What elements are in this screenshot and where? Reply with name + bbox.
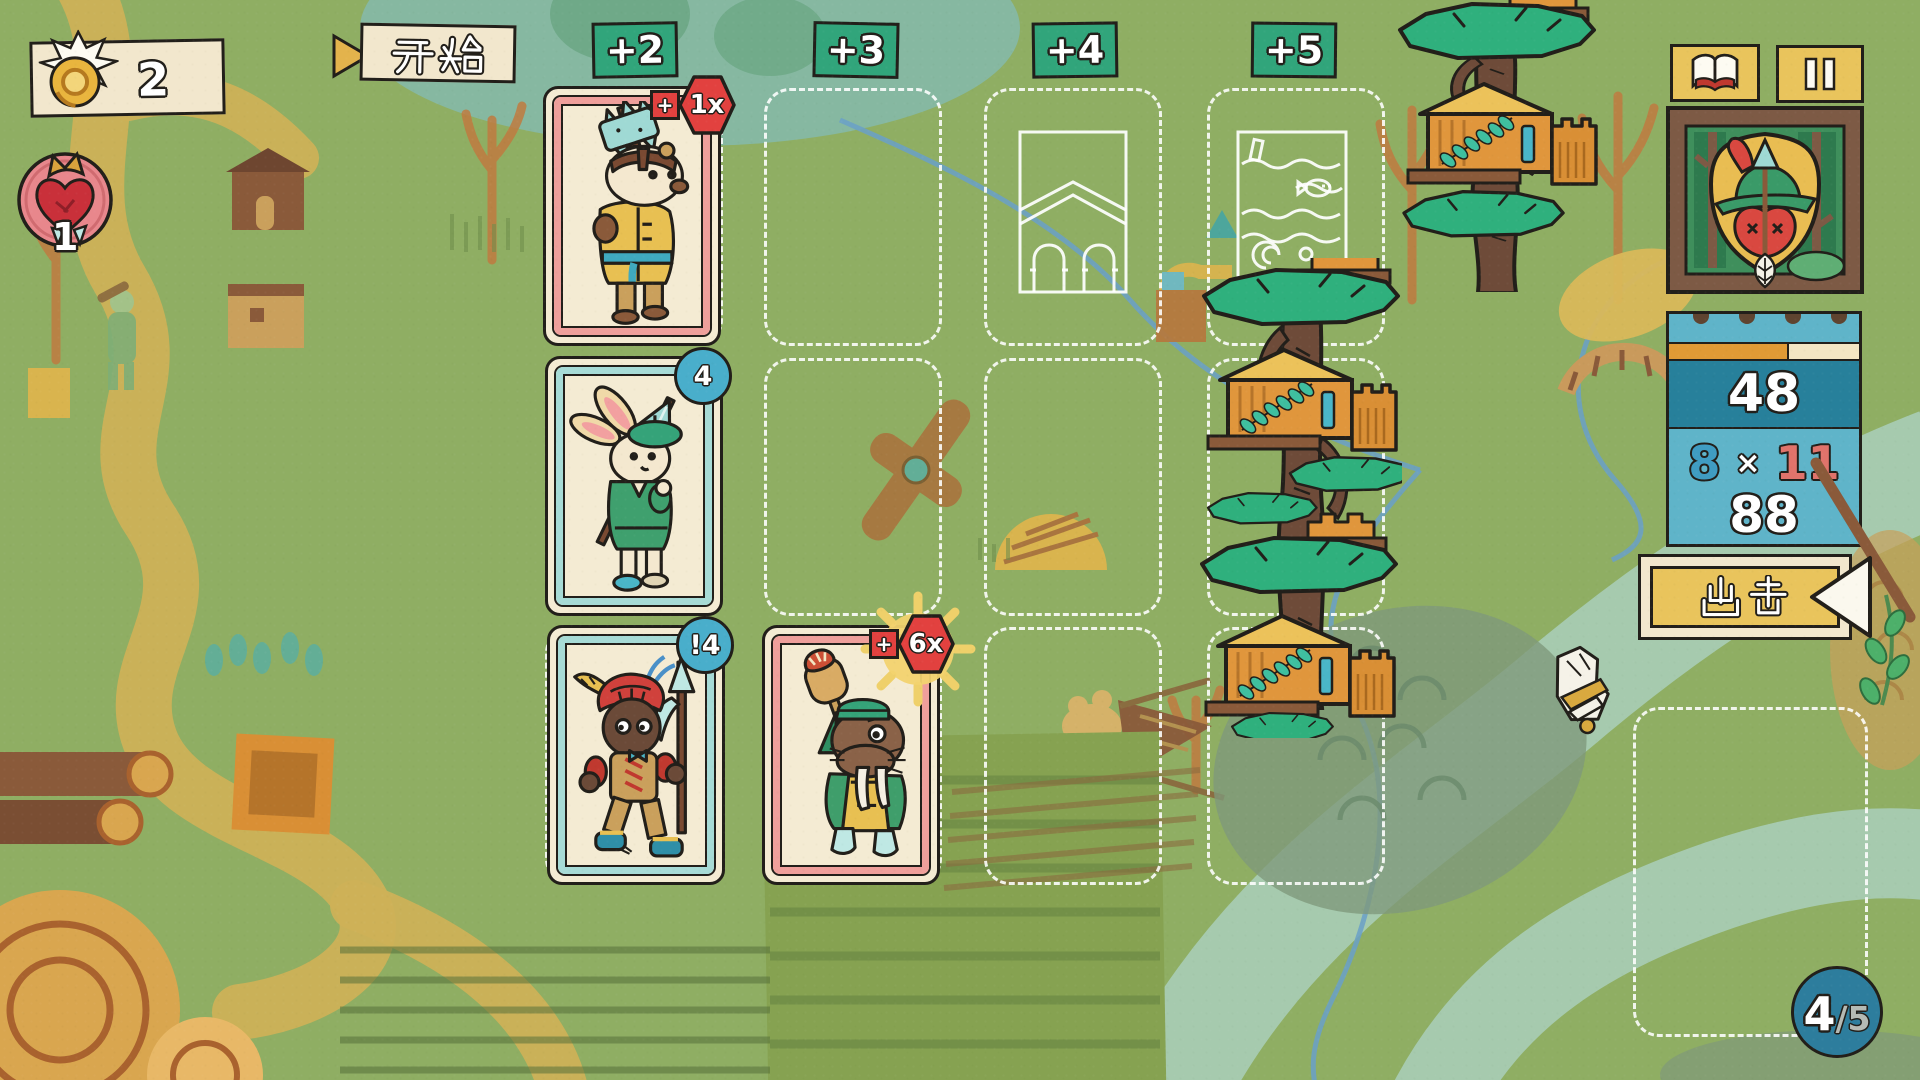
card-rabbit-spearman[interactable]: 4 — [545, 356, 723, 616]
attack-label-glyphs — [1695, 575, 1795, 619]
column-header-plus4: +4 — [1032, 21, 1119, 78]
card-badge: !4 — [676, 616, 734, 674]
gold-counter: 2 — [29, 38, 225, 117]
badge-value: 6x — [895, 612, 957, 676]
badge-value: 1x — [676, 73, 738, 137]
grid-cell-r2c2[interactable] — [764, 358, 942, 616]
enemy-crest — [1666, 106, 1864, 294]
start-label-glyphs — [386, 29, 491, 77]
column-header-plus3: +3 — [812, 21, 899, 79]
coin-icon — [38, 29, 120, 120]
background-scenery — [0, 0, 1920, 1080]
column-header-plus2: +2 — [592, 21, 679, 78]
times-sign: × — [1735, 446, 1760, 481]
card-badge: + 1x — [650, 73, 738, 137]
mole-halberdier-art — [560, 640, 718, 876]
panel-notch — [1785, 314, 1801, 324]
bg-plants — [205, 632, 323, 676]
pause-icon — [1803, 56, 1837, 92]
grid-cell-r2c3[interactable] — [984, 358, 1162, 616]
grid-cell-r3c3[interactable] — [984, 627, 1162, 885]
grid-cell-r1c2[interactable] — [764, 88, 942, 346]
card-walrus-baker[interactable]: + 6x — [762, 625, 940, 885]
book-icon — [1688, 52, 1742, 94]
codex-button[interactable] — [1670, 44, 1760, 102]
card-badger-soldier[interactable]: + 1x — [543, 86, 721, 346]
progress-rest — [1789, 344, 1859, 359]
left-arrow-icon — [1806, 552, 1878, 642]
factor-left: 8 — [1688, 436, 1720, 490]
pause-button[interactable] — [1776, 45, 1864, 103]
start-button[interactable]: 开始 — [330, 22, 522, 86]
progress-bar — [1669, 342, 1859, 361]
card-badge: + 6x — [869, 612, 957, 676]
bg-watcher-character — [96, 280, 136, 390]
wave-current: 4 — [1803, 991, 1835, 1037]
bridge-blueprint — [1018, 130, 1128, 296]
card-mole-halberdier[interactable]: !4 — [547, 625, 725, 885]
rabbit-spearman-art — [558, 371, 716, 607]
total-power: 48 — [1669, 361, 1859, 429]
lives-counter: 1 — [16, 146, 114, 258]
progress-fill — [1669, 344, 1789, 359]
treehouse-tower-middle — [1200, 258, 1402, 738]
card-badge: 4 — [674, 347, 732, 405]
game-screen: +2 +3 +4 +5 — [0, 0, 1920, 1080]
bg-yellow-crate — [28, 368, 70, 418]
treehouse-tower-top — [1392, 0, 1604, 292]
wave-counter: 4/5 — [1791, 966, 1883, 1058]
column-header-plus5: +5 — [1251, 22, 1338, 79]
start-button-face: 开始 — [360, 23, 517, 84]
lives-value: 1 — [52, 218, 78, 256]
panel-notch — [1693, 314, 1709, 324]
panel-notch — [1831, 314, 1847, 324]
wave-total: /5 — [1836, 1002, 1871, 1035]
panel-notch — [1739, 314, 1755, 324]
gold-value: 2 — [137, 56, 170, 103]
bg-shed — [228, 284, 304, 348]
